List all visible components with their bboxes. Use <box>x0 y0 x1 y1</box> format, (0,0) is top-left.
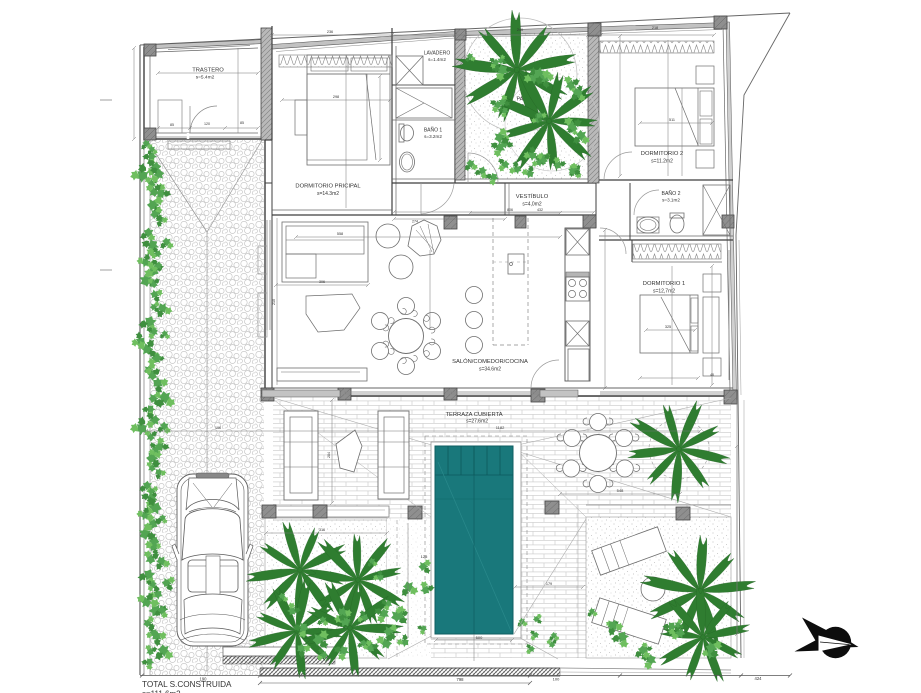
svg-text:s=4,0m2: s=4,0m2 <box>522 202 542 208</box>
svg-text:s=34.6m2: s=34.6m2 <box>479 367 501 373</box>
svg-text:196: 196 <box>215 426 221 430</box>
svg-text:298: 298 <box>333 95 339 99</box>
svg-text:798: 798 <box>457 677 465 682</box>
svg-text:s=111.6m2: s=111.6m2 <box>142 690 181 693</box>
svg-text:85: 85 <box>170 123 174 127</box>
svg-text:316: 316 <box>319 528 325 532</box>
svg-text:48: 48 <box>710 373 714 377</box>
svg-text:VESTÍBULO: VESTÍBULO <box>516 193 549 200</box>
svg-text:100: 100 <box>553 677 560 682</box>
svg-text:DORMITORIO 1: DORMITORIO 1 <box>643 281 685 287</box>
svg-text:85: 85 <box>240 121 244 125</box>
svg-text:500: 500 <box>476 635 483 640</box>
svg-text:432: 432 <box>537 208 543 212</box>
svg-text:LAVADERO: LAVADERO <box>424 51 451 57</box>
svg-text:120: 120 <box>204 122 210 126</box>
svg-text:TOTAL S.CONSTRUIDA: TOTAL S.CONSTRUIDA <box>142 680 232 689</box>
svg-text:TERRAZA CUBIERTA: TERRAZA CUBIERTA <box>445 412 502 418</box>
svg-text:s=14.3m2: s=14.3m2 <box>317 191 339 197</box>
svg-text:548: 548 <box>617 488 624 493</box>
svg-text:236: 236 <box>327 30 333 34</box>
svg-text:511: 511 <box>669 118 675 122</box>
svg-text:s=1.4m2: s=1.4m2 <box>428 57 446 62</box>
svg-text:BAÑO 1: BAÑO 1 <box>424 127 443 134</box>
svg-text:179: 179 <box>546 582 552 586</box>
svg-text:240: 240 <box>517 28 523 32</box>
svg-text:s=5.4m2: s=5.4m2 <box>196 75 215 81</box>
svg-text:424: 424 <box>755 676 763 681</box>
svg-text:306: 306 <box>319 280 325 284</box>
svg-text:325: 325 <box>665 325 671 329</box>
svg-text:DORMITORIO 2: DORMITORIO 2 <box>641 151 683 157</box>
svg-text:s=3.2m2: s=3.2m2 <box>424 134 442 139</box>
svg-text:1182: 1182 <box>496 425 505 430</box>
svg-text:558: 558 <box>337 232 343 236</box>
svg-text:284: 284 <box>327 452 331 458</box>
svg-text:s=11.2m2: s=11.2m2 <box>651 159 673 165</box>
svg-text:125: 125 <box>421 554 428 559</box>
svg-text:BAÑO 2: BAÑO 2 <box>661 190 680 197</box>
svg-text:210: 210 <box>272 299 276 305</box>
svg-text:s=27.6m2: s=27.6m2 <box>466 419 488 425</box>
svg-text:806: 806 <box>507 208 513 212</box>
svg-text:274: 274 <box>412 220 418 224</box>
svg-text:s=3.1m2: s=3.1m2 <box>662 198 680 203</box>
svg-text:SALÓN/COMEDOR/COCINA: SALÓN/COMEDOR/COCINA <box>452 358 528 365</box>
svg-text:DORMITORIO PRICIPAL: DORMITORIO PRICIPAL <box>295 184 361 190</box>
svg-text:TRASTERO: TRASTERO <box>192 68 224 74</box>
svg-text:218: 218 <box>652 26 658 30</box>
